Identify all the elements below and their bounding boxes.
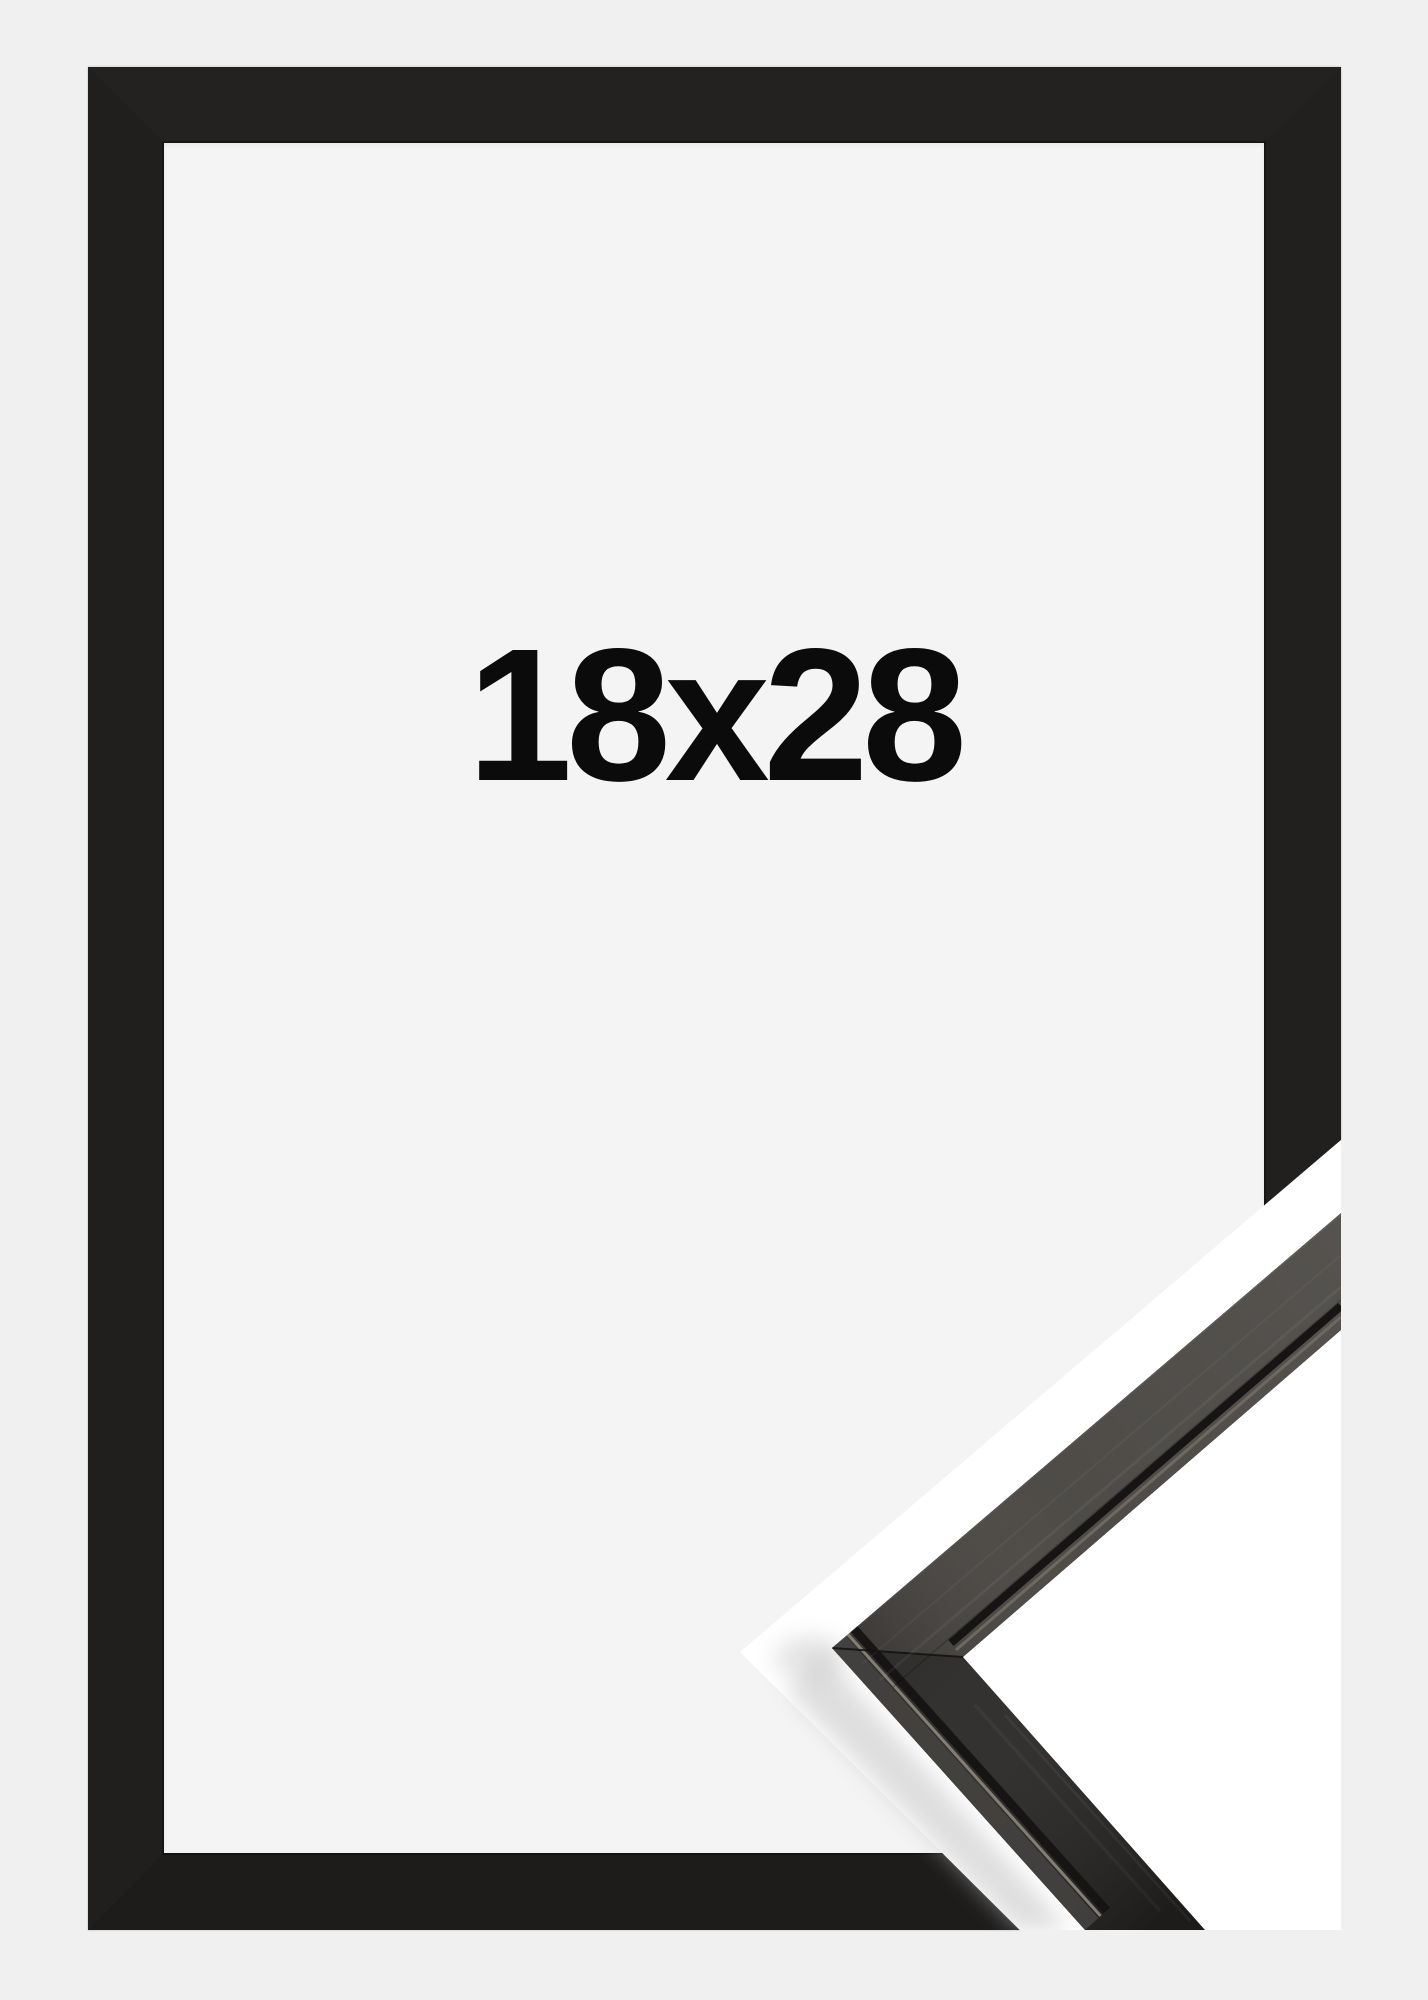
product-photo: 18x28 [0, 0, 1428, 2000]
profile-shadow-vertex [774, 1636, 846, 1680]
profile-lip-highlight-upper [956, 1317, 1341, 1650]
profile-groove-upper [951, 1306, 1341, 1643]
frame-corner-profile-photo [0, 0, 1428, 2000]
